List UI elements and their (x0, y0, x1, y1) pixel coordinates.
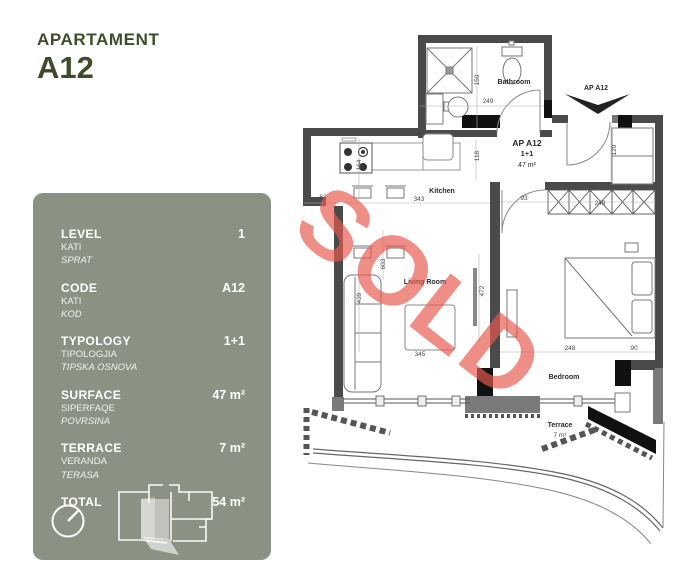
surface-sub2: POVRSINA (61, 415, 245, 428)
typology-label: TYPOLOGY (61, 334, 131, 348)
page-title: APARTAMENT (37, 30, 159, 50)
dim-bedroom-door: 93 (520, 195, 528, 202)
room-label-bathroom: Bathroom (497, 79, 530, 86)
coffee-table-icon (405, 305, 455, 350)
unit-typology: 1+1 (521, 149, 534, 158)
surface-value: 47 m² (212, 388, 245, 402)
dim-living-length: 603 (380, 258, 387, 269)
key-plan-icon (111, 477, 221, 557)
unit-name: AP A12 (512, 138, 542, 148)
terrace-label: TERRACE (61, 441, 122, 455)
page-header: APARTAMENT A12 (37, 30, 159, 83)
dim-passage: 118 (474, 150, 481, 161)
nightstand-icon (625, 243, 638, 252)
sink-icon (444, 97, 468, 117)
code-sub1: KATI (61, 295, 245, 308)
apartment-page: APARTAMENT A12 LEVEL 1 KATI SPRAT CODE A… (0, 0, 695, 579)
floor-plan: 150 249 164 63 343 118 120 249 93 603 43… (292, 22, 692, 567)
room-label-terrace: Terrace (548, 422, 573, 429)
room-label-bedroom: Bedroom (549, 374, 580, 381)
typology-sub1: TIPOLOGJIA (61, 348, 245, 361)
panel-row-level: LEVEL 1 KATI SPRAT (61, 227, 245, 268)
entry-arrow-icon (565, 94, 630, 114)
terrace-area-label: 7 m² (554, 432, 568, 439)
dim-bathroom-width: 249 (483, 98, 494, 105)
level-sub1: KATI (61, 241, 245, 254)
info-panel: LEVEL 1 KATI SPRAT CODE A12 KATI KOD TYP… (33, 193, 271, 560)
panel-row-terrace: TERRACE 7 m² VERANDA TERASA (61, 441, 245, 482)
bed-icon (565, 258, 655, 338)
dim-sofa-length: 439 (356, 292, 363, 303)
dim-bathroom-height: 150 (474, 74, 481, 85)
shower-icon (427, 48, 472, 93)
level-label: LEVEL (61, 227, 102, 241)
kitchen-counter (372, 134, 460, 170)
dim-living-wall: 472 (479, 285, 486, 296)
entry-label: AP A12 (584, 85, 608, 92)
compass-icon (49, 501, 89, 541)
typology-value: 1+1 (224, 334, 245, 348)
bathroom-closet (426, 94, 443, 124)
terrace-value: 7 m² (219, 441, 245, 455)
level-value: 1 (238, 227, 245, 241)
panel-row-code: CODE A12 KATI KOD (61, 281, 245, 322)
room-label-living: Living Room (404, 279, 446, 286)
panel-row-typology: TYPOLOGY 1+1 TIPOLOGJIA TIPSKA OSNOVA (61, 334, 245, 375)
dim-kitchen-width: 343 (414, 196, 425, 203)
dresser-icon (507, 290, 517, 337)
entry-marker: AP A12 (565, 85, 630, 114)
dim-wall-jog: 63 (319, 194, 327, 201)
terrace-sub1: VERANDA (61, 455, 245, 468)
code-sub2: KOD (61, 308, 245, 321)
toilet-icon (502, 41, 522, 84)
surface-sub1: SIPERFAQE (61, 402, 245, 415)
dim-bedroom-width: 248 (565, 345, 576, 352)
panel-row-surface: SURFACE 47 m² SIPERFAQE POVRSINA (61, 388, 245, 429)
kitchen-stools (352, 186, 406, 198)
living-stools (352, 246, 406, 258)
sofa-icon (344, 275, 381, 392)
dim-living-width: 345 (415, 351, 426, 358)
code-label: CODE (61, 281, 97, 295)
unit-info-label: AP A12 1+1 47 m² (512, 138, 542, 169)
ac-unit-icon (615, 393, 630, 412)
level-sub2: SPRAT (61, 254, 245, 267)
unit-area: 47 m² (518, 162, 537, 169)
code-value: A12 (222, 281, 245, 295)
hall-closet (612, 128, 653, 184)
dim-wardrobe-width: 249 (595, 200, 606, 207)
surface-label: SURFACE (61, 388, 121, 402)
room-label-kitchen: Kitchen (429, 188, 455, 195)
apartment-code: A12 (37, 52, 159, 83)
typology-sub2: TIPSKA OSNOVA (61, 361, 245, 374)
dim-kitchen-depth: 164 (356, 159, 363, 170)
dim-bedroom-side: 90 (630, 345, 638, 352)
dim-entry-door: 120 (611, 144, 618, 155)
tv-unit-living (473, 268, 477, 326)
